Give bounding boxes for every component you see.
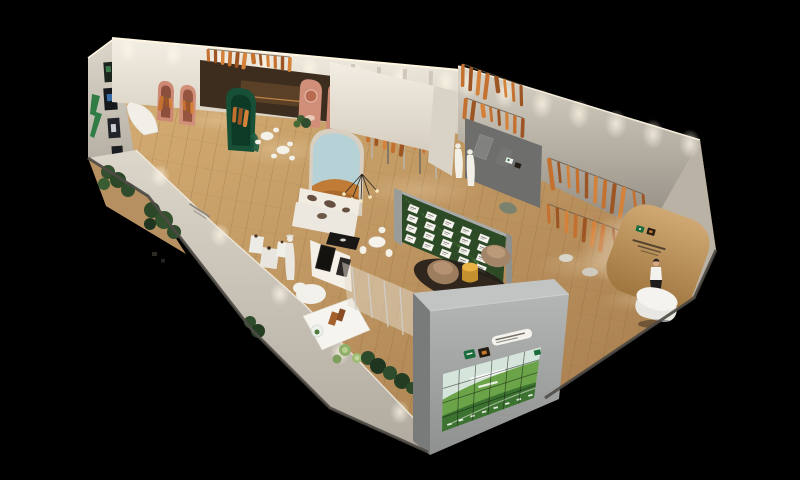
spotlight-glow [568, 99, 590, 129]
spotlight-glow [150, 164, 170, 188]
moss-dot [439, 228, 442, 231]
monolith-side [413, 293, 430, 455]
ham-icon [281, 56, 285, 70]
exhibition-booth-render [0, 0, 800, 480]
spotlight-glow [390, 400, 410, 424]
moss-dot [471, 257, 474, 260]
spotlight-glow [642, 119, 664, 149]
spotlight-glow [164, 42, 182, 68]
moss-dot [403, 197, 405, 199]
spotlight-glow [119, 37, 137, 63]
spotlight-glow [679, 129, 701, 159]
ham-icon [585, 172, 589, 198]
moss-dot [450, 238, 453, 241]
yellow-drum-table [462, 263, 478, 283]
spotlight-glow [605, 109, 627, 139]
spotlight-glow [457, 69, 479, 99]
moss-dot [455, 242, 458, 245]
moss-dot [453, 240, 456, 243]
moss-dot [505, 238, 507, 240]
ham-icon [214, 50, 217, 64]
ham-icon [519, 85, 523, 106]
ham-icon [461, 64, 465, 87]
ham-icon [221, 50, 225, 64]
ham-icon [505, 112, 509, 130]
spotlight-glow [531, 89, 553, 119]
spotlight-glow [210, 223, 230, 247]
moss-dot [436, 226, 439, 229]
ham-icon [190, 102, 193, 114]
ham-icon [288, 57, 292, 72]
ham-icon [186, 101, 190, 112]
moss-dot [420, 211, 422, 213]
green-arch-display [226, 88, 259, 152]
ham-icon [273, 56, 277, 69]
moss-dot [405, 199, 407, 201]
spotlight-glow [270, 282, 290, 306]
ham-icon [556, 207, 560, 228]
moss-dot [502, 236, 504, 238]
moss-dot [408, 201, 410, 203]
moss-dot [422, 213, 424, 215]
ham-icon [513, 115, 517, 134]
moss-dot [457, 244, 460, 247]
ham-icon [206, 49, 210, 62]
ham-icon [565, 211, 568, 233]
